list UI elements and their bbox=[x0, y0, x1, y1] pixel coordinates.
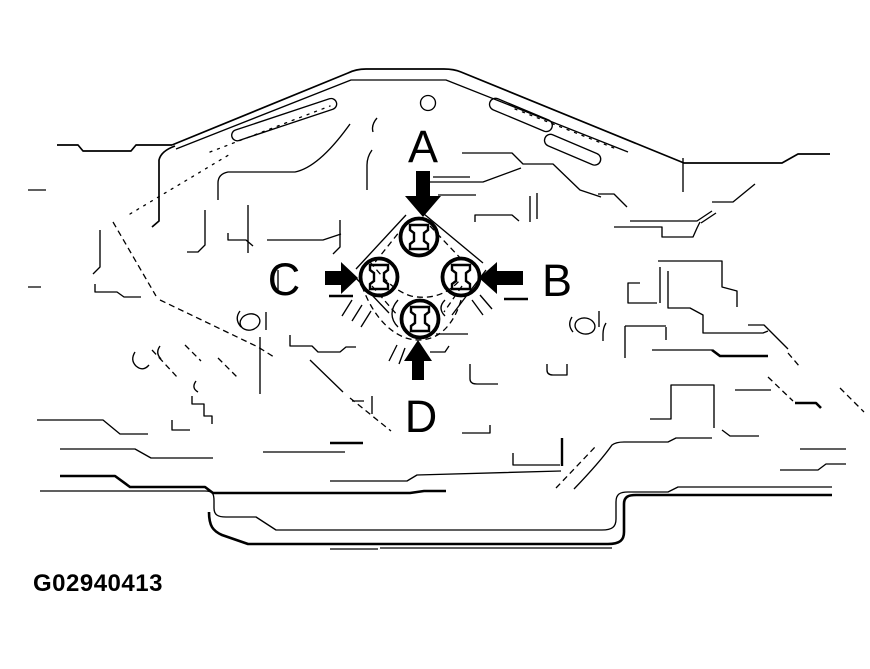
bolt-label-a: A bbox=[408, 121, 438, 172]
dowel-hole bbox=[421, 96, 436, 111]
case-right-details bbox=[430, 153, 768, 358]
right-slot bbox=[488, 96, 554, 133]
bolt-top bbox=[401, 219, 438, 256]
case-outline bbox=[57, 69, 830, 227]
arrow-up-icon bbox=[404, 340, 432, 380]
bolt-left bbox=[361, 259, 398, 296]
case-lower-right-details bbox=[650, 325, 864, 436]
service-manual-figure: A B C D G02940413 bbox=[0, 0, 870, 669]
bolt-bottom bbox=[402, 301, 439, 338]
arrow-left-icon bbox=[479, 262, 523, 294]
right-slot-2 bbox=[543, 132, 603, 166]
left-slot bbox=[230, 97, 338, 142]
arrow-down-icon bbox=[405, 171, 441, 217]
bolt-label-b: B bbox=[542, 255, 572, 306]
bolt-label-c: C bbox=[268, 254, 301, 305]
arrow-right-icon bbox=[325, 262, 358, 294]
figure-id: G02940413 bbox=[33, 570, 163, 597]
transmission-bolt-diagram: A B C D G02940413 bbox=[0, 0, 870, 669]
right-bolt-hole bbox=[574, 316, 596, 335]
case-center-details bbox=[172, 220, 567, 433]
bolt-right bbox=[443, 259, 480, 296]
left-bolt-hole bbox=[238, 312, 261, 333]
bolt-label-d: D bbox=[405, 391, 438, 442]
pan-flange-lines bbox=[37, 420, 846, 549]
